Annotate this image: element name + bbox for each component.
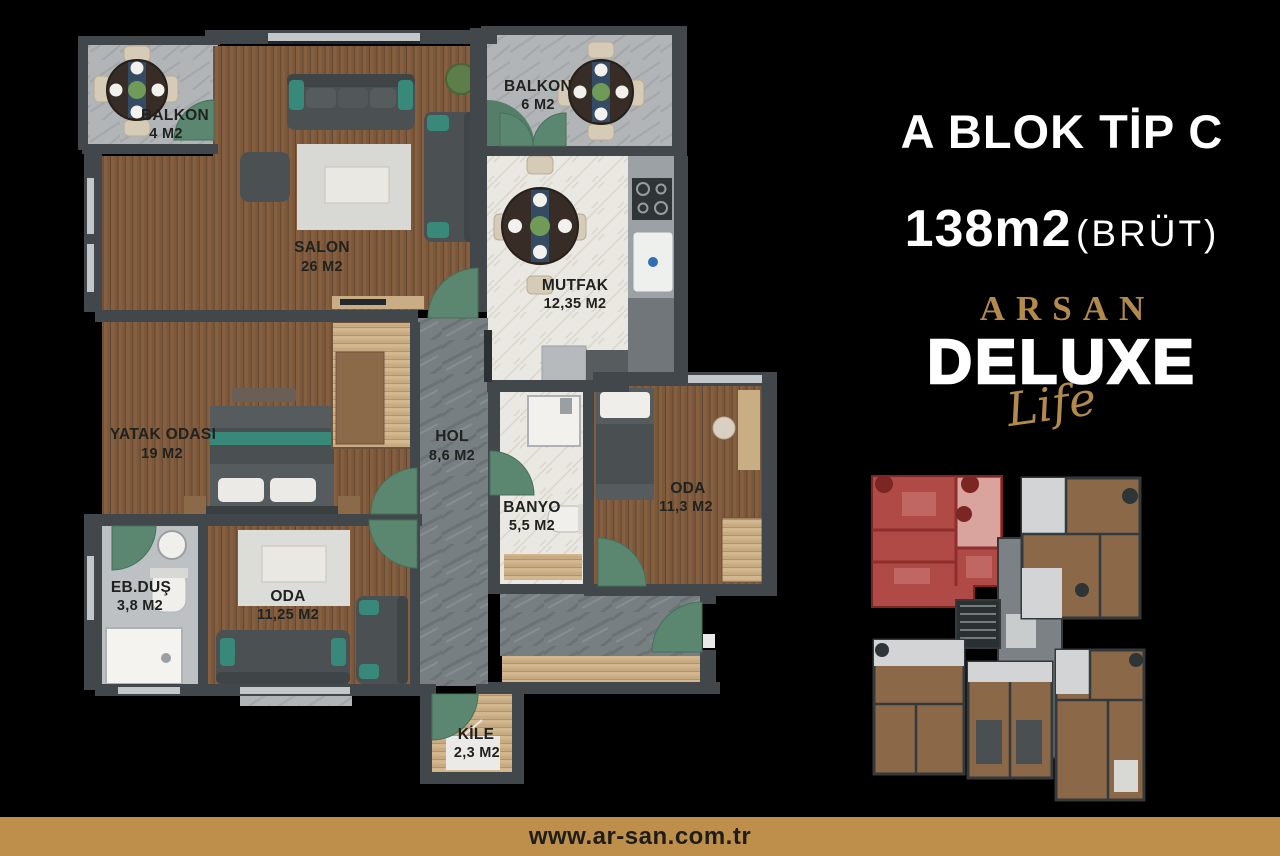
- bedroom-label: YATAK ODASI: [110, 426, 216, 443]
- floors: [82, 30, 762, 772]
- room1125-area: 11,25 M2: [257, 607, 319, 623]
- pantry-area: 2,3 M2: [454, 745, 500, 761]
- balcony4-area: 4 M2: [149, 126, 182, 142]
- key-plan-unit-top-right: [1022, 478, 1140, 618]
- info-panel: A BLOK TİP C 138m2 (BRÜT) ARSAN DELUXE L…: [850, 0, 1274, 459]
- balcony6-label: BALKON: [504, 78, 572, 95]
- footer-bar: www.ar-san.com.tr: [0, 817, 1280, 856]
- brand-logo: ARSAN DELUXE Life: [850, 289, 1274, 459]
- room113-label: ODA: [670, 480, 705, 497]
- ensuite-label: EB.DUŞ: [111, 579, 171, 596]
- bedroom-wardrobe: [332, 322, 412, 448]
- bathroom-label: BANYO: [503, 499, 560, 516]
- hall-floor: [418, 318, 488, 686]
- area-line: 138m2 (BRÜT): [850, 199, 1274, 259]
- salon-armchair: [240, 152, 290, 202]
- entry-mat: [502, 656, 700, 682]
- bathroom-area: 5,5 M2: [509, 518, 555, 534]
- salon-label: SALON: [294, 239, 350, 256]
- bedroom-area: 19 M2: [141, 446, 183, 462]
- salon-sofa: [287, 74, 415, 130]
- salon-coffee-table: [325, 167, 389, 203]
- key-plan-unit-bottom-right: [1056, 650, 1144, 800]
- kitchen-cabinet: [628, 298, 674, 380]
- hall-label: HOL: [435, 428, 469, 445]
- kitchen-label: MUTFAK: [542, 277, 609, 294]
- hall-area: 8,6 M2: [429, 448, 475, 464]
- salon-area: 26 M2: [301, 259, 343, 275]
- area-note: (BRÜT): [1076, 213, 1219, 254]
- brand-name: ARSAN: [850, 289, 1274, 329]
- area-value: 138m2: [905, 200, 1072, 258]
- balcony6-area: 6 M2: [521, 97, 554, 113]
- balcony4-label: BALKON: [141, 107, 209, 124]
- plan-title: A BLOK TİP C: [850, 104, 1274, 159]
- building-key-plan: [868, 472, 1180, 810]
- key-plan-unit-bottom-left: [874, 640, 964, 774]
- room1125-label: ODA: [270, 588, 305, 605]
- ensuite-area: 3,8 M2: [117, 598, 163, 614]
- brand-script: Life: [1003, 371, 1099, 437]
- salon-tv: [340, 299, 386, 305]
- website-url: www.ar-san.com.tr: [529, 823, 751, 851]
- poster-canvas: BALKON 4 M2 SALON 26 M2 BALKON 6 M2 MUTF…: [0, 0, 1280, 856]
- key-plan-unit-bottom-middle: [968, 662, 1052, 778]
- pantry-label: KİLE: [458, 726, 495, 743]
- kitchen-area: 12,35 M2: [544, 296, 607, 312]
- salon-sofa-vertical: [424, 112, 476, 242]
- room113-area: 11,3 M2: [659, 499, 713, 515]
- floor-plan: BALKON 4 M2 SALON 26 M2 BALKON 6 M2 MUTF…: [0, 0, 820, 817]
